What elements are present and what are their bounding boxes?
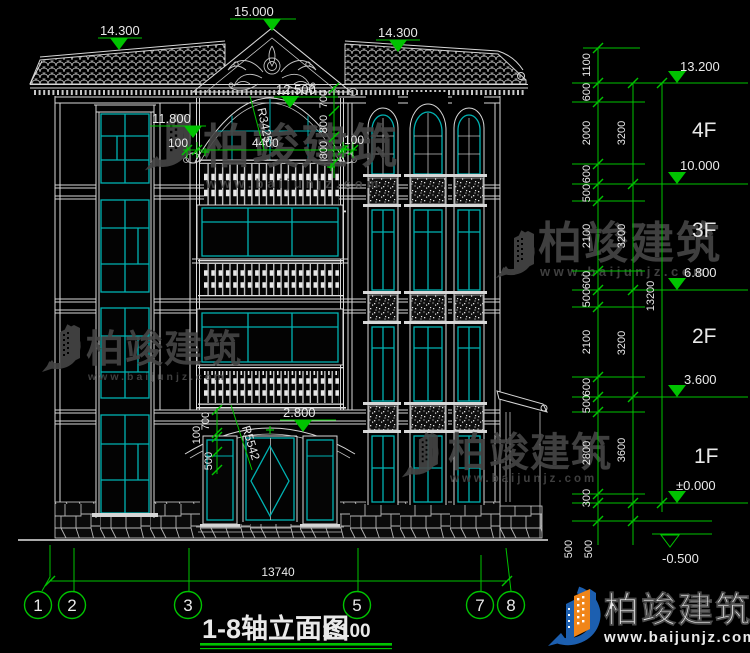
elevation-label: 11.800 [152, 111, 191, 126]
dim-label: 500 [581, 289, 593, 307]
marker-15000: 15.000 [230, 4, 296, 31]
axis-number: 8 [506, 596, 515, 615]
dim-label: 500 [581, 184, 593, 202]
watermark-url: www.baijunjz.com [87, 371, 227, 383]
elevation-label: 13.200 [680, 59, 720, 74]
right-dimension-block: 1100 600 2000 600 500 2100 600 500 2100 … [563, 43, 748, 566]
bottom-axes: 13740 1 2 3 5 7 8 1-8轴立面图 1:100 [25, 545, 525, 649]
marker-14300-left: 14.300 [98, 23, 142, 50]
watermark-url: www.baijunjz.com [449, 473, 597, 485]
dim-label: 3200 [616, 331, 628, 355]
curtain-sill [92, 513, 158, 517]
watermark-logo-icon [42, 325, 80, 372]
dim-label: 700 [318, 90, 330, 108]
marker-12500: 12.500 [274, 82, 358, 108]
window-3f [192, 205, 348, 263]
elevation-label: 3.600 [684, 372, 717, 387]
axis-number: 5 [352, 596, 361, 615]
dim-label: 600 [581, 378, 593, 396]
dim-label: 100 [168, 136, 188, 150]
dim-label: 500 [563, 540, 575, 558]
axis-number: 1 [33, 596, 42, 615]
dim-label: 800 [318, 141, 330, 159]
cad-elevation-drawing: 柏竣建筑 www.baijunjz.com 柏竣建筑 www.baijunjz.… [0, 0, 750, 653]
floor-label: 4F [692, 119, 717, 142]
dim-label: 500 [203, 452, 215, 470]
elevation-label: 6.800 [684, 265, 717, 280]
dim-label: 500 [581, 395, 593, 413]
dim-label: 800 [318, 115, 330, 133]
stone-base-right [500, 506, 542, 538]
elevation-label: -0.500 [662, 551, 699, 566]
dim-label: 3600 [616, 438, 628, 462]
elevation-label: 2.800 [283, 405, 316, 420]
entry-window-right [300, 436, 340, 527]
dim-label-total-height: 13200 [645, 281, 657, 312]
watermark-url: www.baijunjz.com [205, 176, 382, 191]
dim-label: 600 [581, 83, 593, 101]
elevation-label: 14.300 [100, 23, 140, 38]
brand-url: www.baijunjz.com [603, 629, 750, 646]
overall-width-dim: 13740 [261, 565, 295, 579]
roof-left-tiles [30, 44, 225, 84]
elevation-label: 10.000 [680, 158, 720, 173]
watermark-logo-icon [496, 231, 534, 278]
elevation-label: ±0.000 [676, 478, 716, 493]
dim-label: 2800 [581, 441, 593, 465]
dim-label: 2100 [581, 330, 593, 354]
dim-label: 2000 [581, 121, 593, 145]
watermark-left: 柏竣建筑 www.baijunjz.com [42, 325, 242, 383]
balcony-railing-3f [198, 260, 344, 296]
roof-right-tiles [345, 44, 526, 84]
dim-label: 2100 [581, 224, 593, 248]
elevation-label: 15.000 [234, 4, 274, 19]
watermark-brand: 柏竣建筑 [203, 120, 399, 173]
dim-label: 100 [191, 426, 203, 444]
dim-label: 3200 [616, 224, 628, 248]
brand-logo: 柏竣建筑 www.baijunjz.com [548, 589, 750, 646]
dim-label: 100 [344, 133, 364, 147]
entrance [185, 426, 355, 532]
title-scale: 1:100 [322, 621, 371, 642]
elevation-label: 12.500 [276, 82, 316, 97]
axis-number: 3 [183, 596, 192, 615]
brand-logo-icon [548, 589, 597, 646]
drawing-title: 1-8轴立面图 1:100 [200, 613, 392, 649]
elevation-label: 14.300 [378, 25, 418, 40]
axis-number: 2 [67, 596, 76, 615]
elevation-canvas: 柏竣建筑 www.baijunjz.com 柏竣建筑 www.baijunjz.… [0, 0, 750, 653]
dim-label: 600 [581, 271, 593, 289]
axis-number: 7 [475, 596, 484, 615]
dim-label: 3200 [616, 121, 628, 145]
dim-label: 1100 [581, 53, 593, 77]
floor-label: 1F [694, 445, 719, 468]
dim-label: 600 [581, 165, 593, 183]
floor-label: 2F [692, 325, 717, 348]
dim-label: 300 [581, 489, 593, 507]
brand-name: 柏竣建筑 [604, 590, 750, 630]
dim-label: 500 [583, 540, 595, 558]
watermark-brand: 柏竣建筑 [86, 329, 242, 371]
floor-label: 3F [692, 219, 717, 242]
